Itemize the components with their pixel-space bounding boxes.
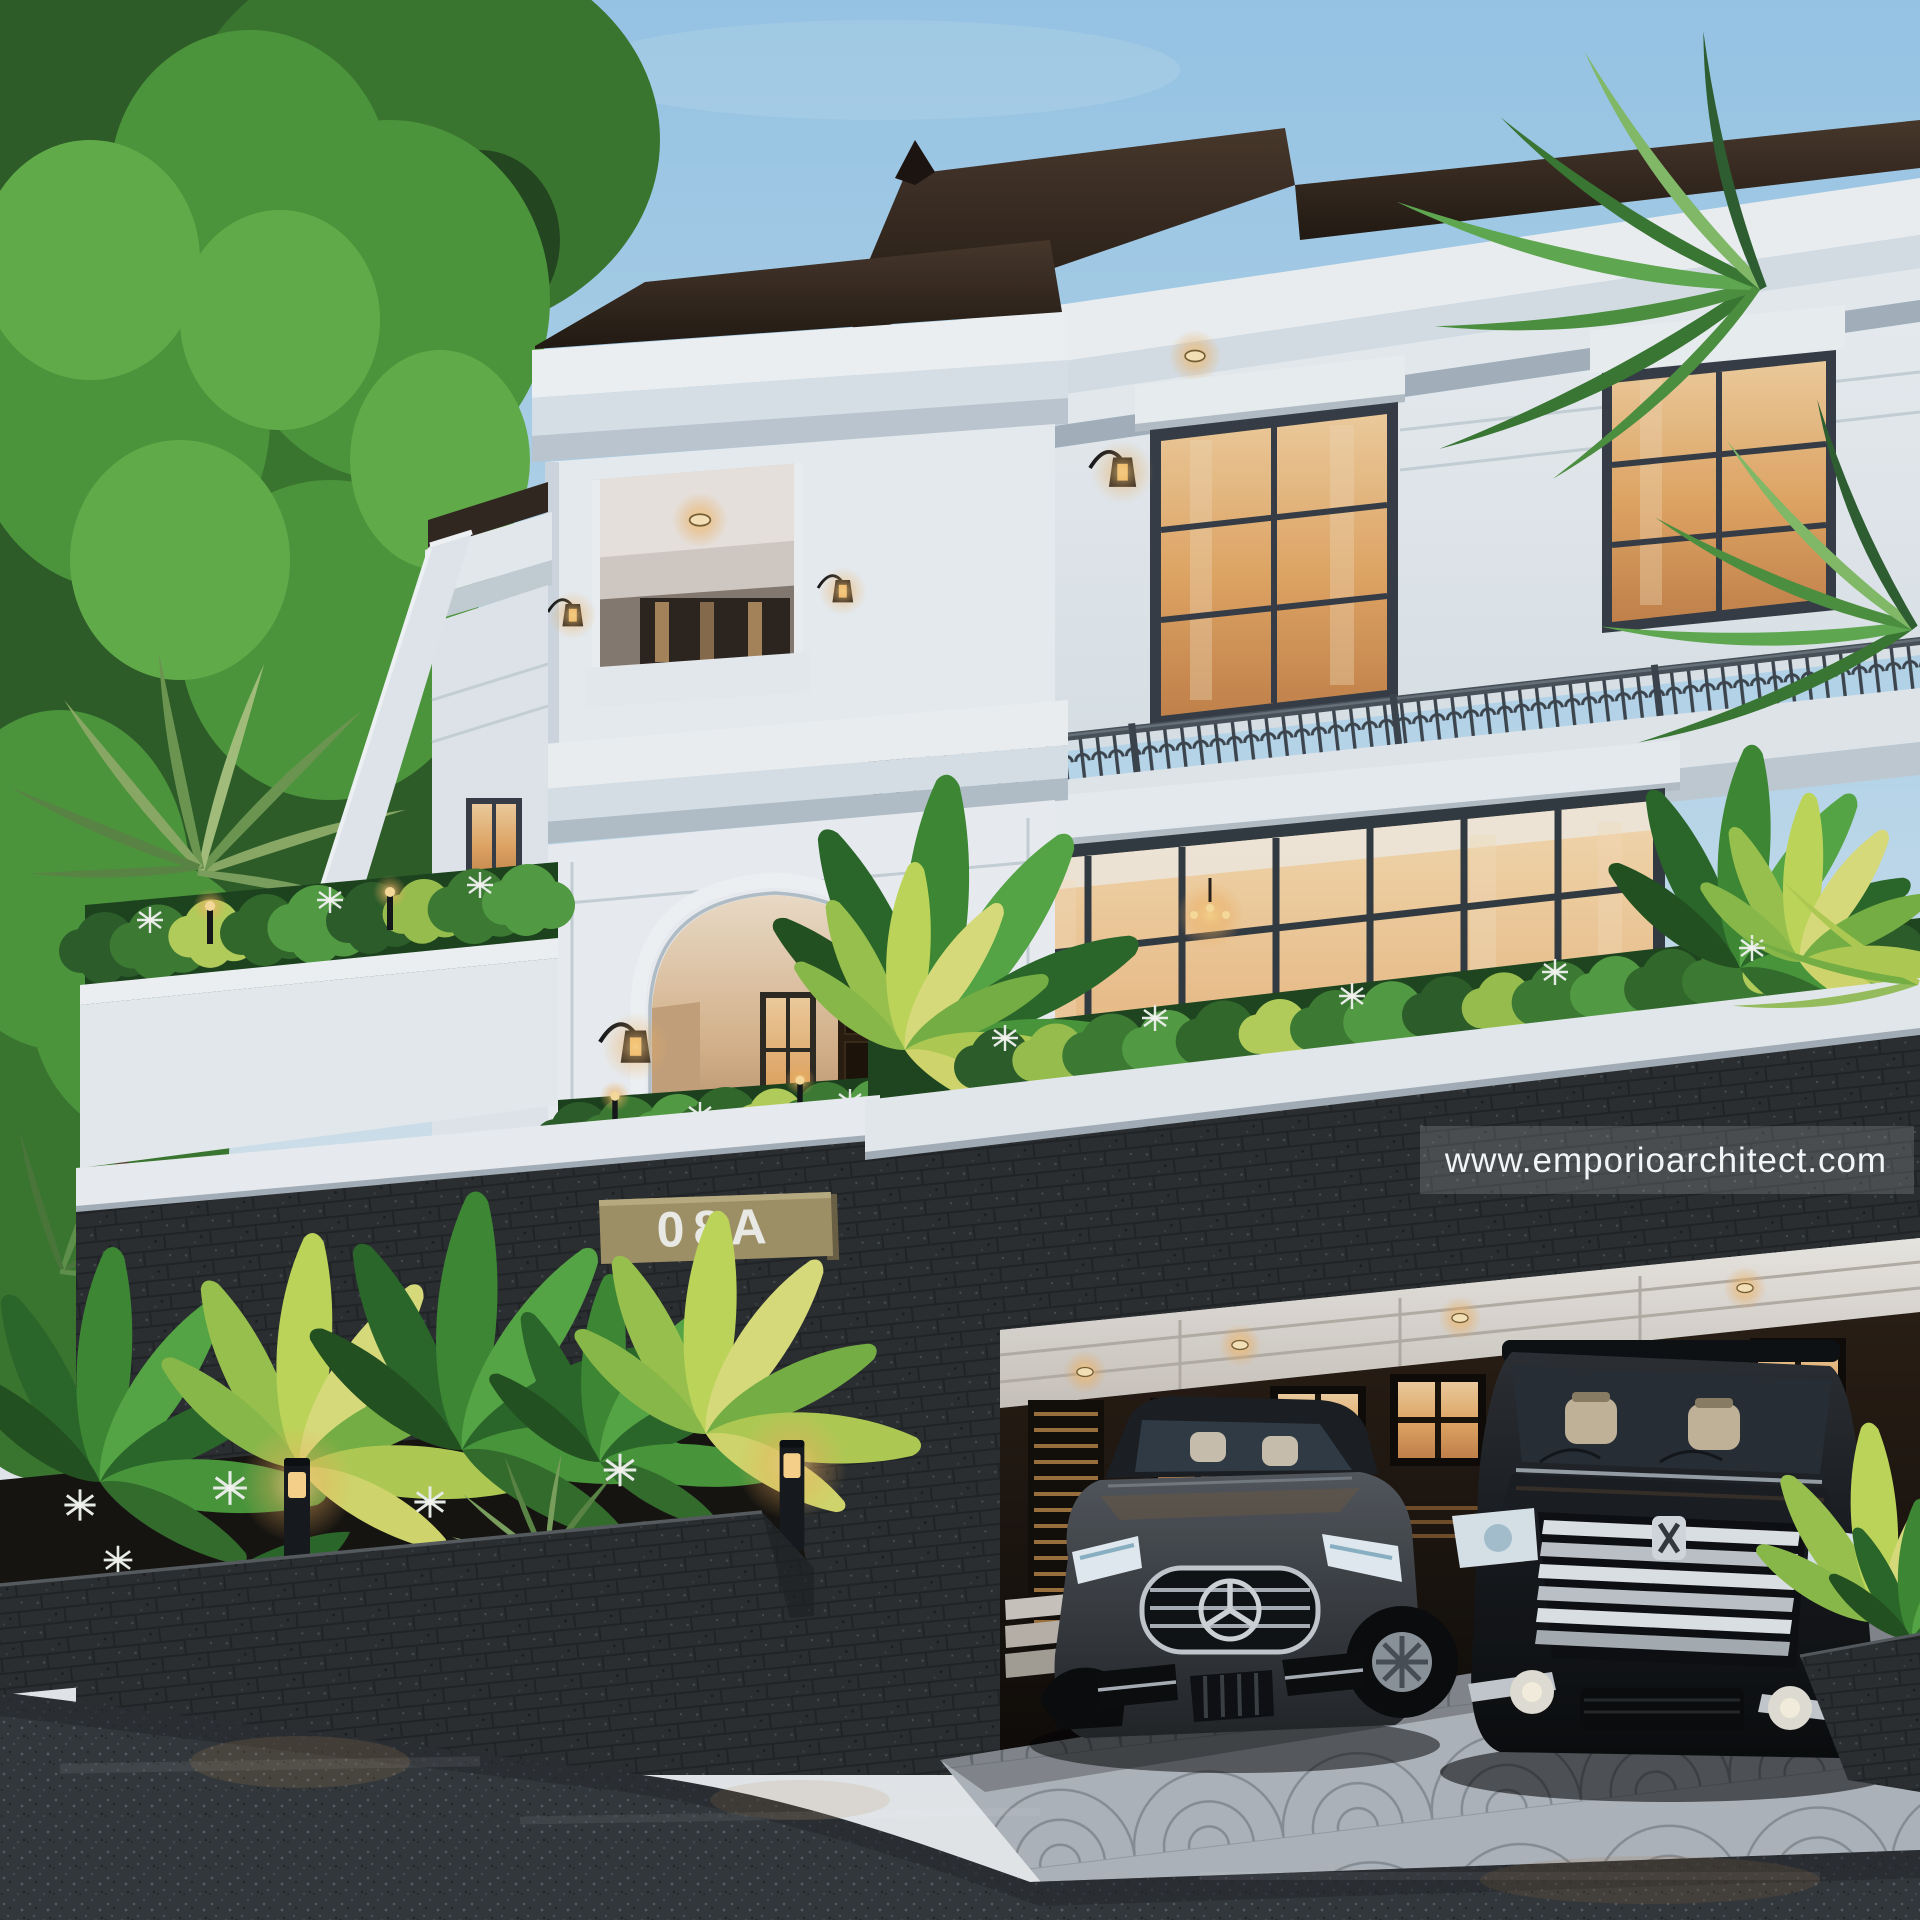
architectural-render: 08A	[0, 0, 1920, 1920]
vignette	[0, 0, 1920, 1920]
scene-canvas: 08A	[0, 0, 1920, 1920]
